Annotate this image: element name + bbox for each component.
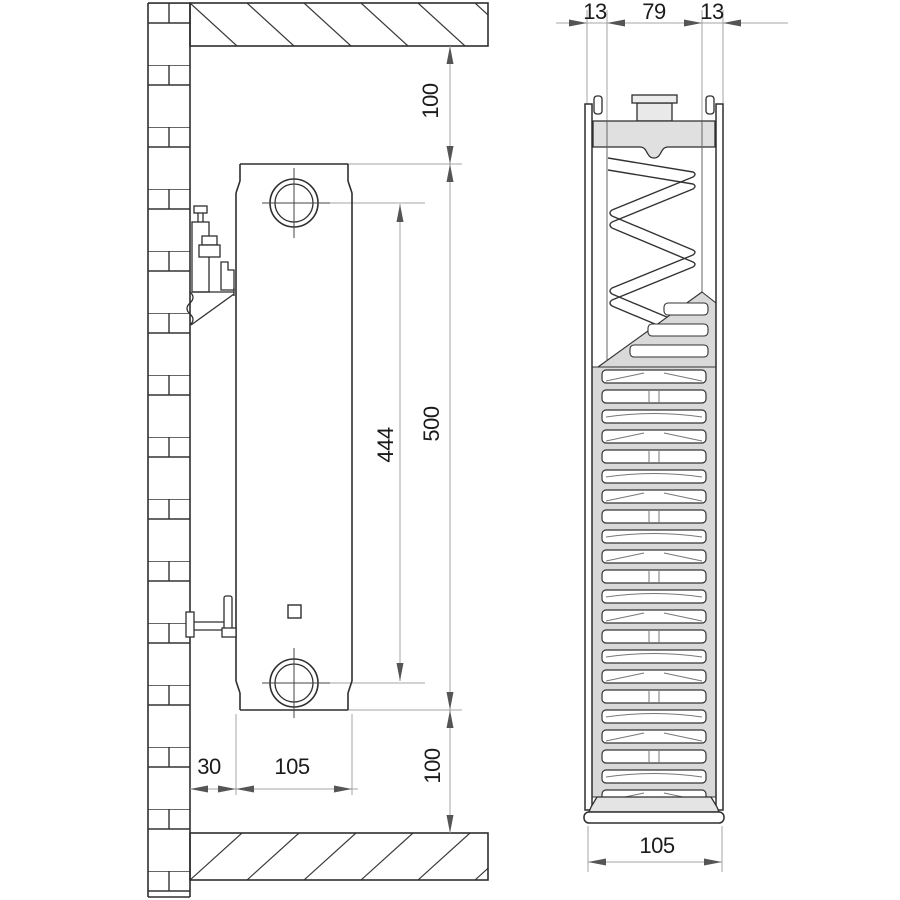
rear-trim-panel [716,104,723,810]
brick-wall [148,3,190,897]
radiator-side-view [236,164,352,718]
dim-label-floor-clearance: 100 [422,748,444,783]
front-trim-panel [585,104,592,810]
top-plug [637,103,672,121]
bottom-base [584,812,724,823]
panel-label-mark [288,605,301,618]
ceiling-beam [190,3,488,46]
floor-beam [190,833,488,880]
radiator-cross-section [584,95,724,823]
lower-wall-bracket [186,596,236,637]
bottom-cap [589,797,719,812]
dim-label-connection-spacing: 444 [375,427,397,462]
dim-label-radiator-depth: 105 [274,756,309,778]
dim-label-front-panel: 13 [583,1,606,23]
dim-label-total-depth: 105 [639,835,674,857]
dim-label-ceiling-clearance: 100 [420,83,442,118]
technical-drawing: 13 79 13 100 500 444 100 30 105 105 [0,0,900,900]
dim-label-wall-distance: 30 [197,756,220,778]
dim-label-core-width: 79 [642,1,665,23]
dim-label-radiator-height: 500 [421,406,443,441]
drawing-linework [0,0,900,900]
bracket-hook [221,262,234,290]
dim-label-rear-panel: 13 [700,1,723,23]
top-header [593,121,715,158]
upper-wall-bracket [187,206,234,325]
